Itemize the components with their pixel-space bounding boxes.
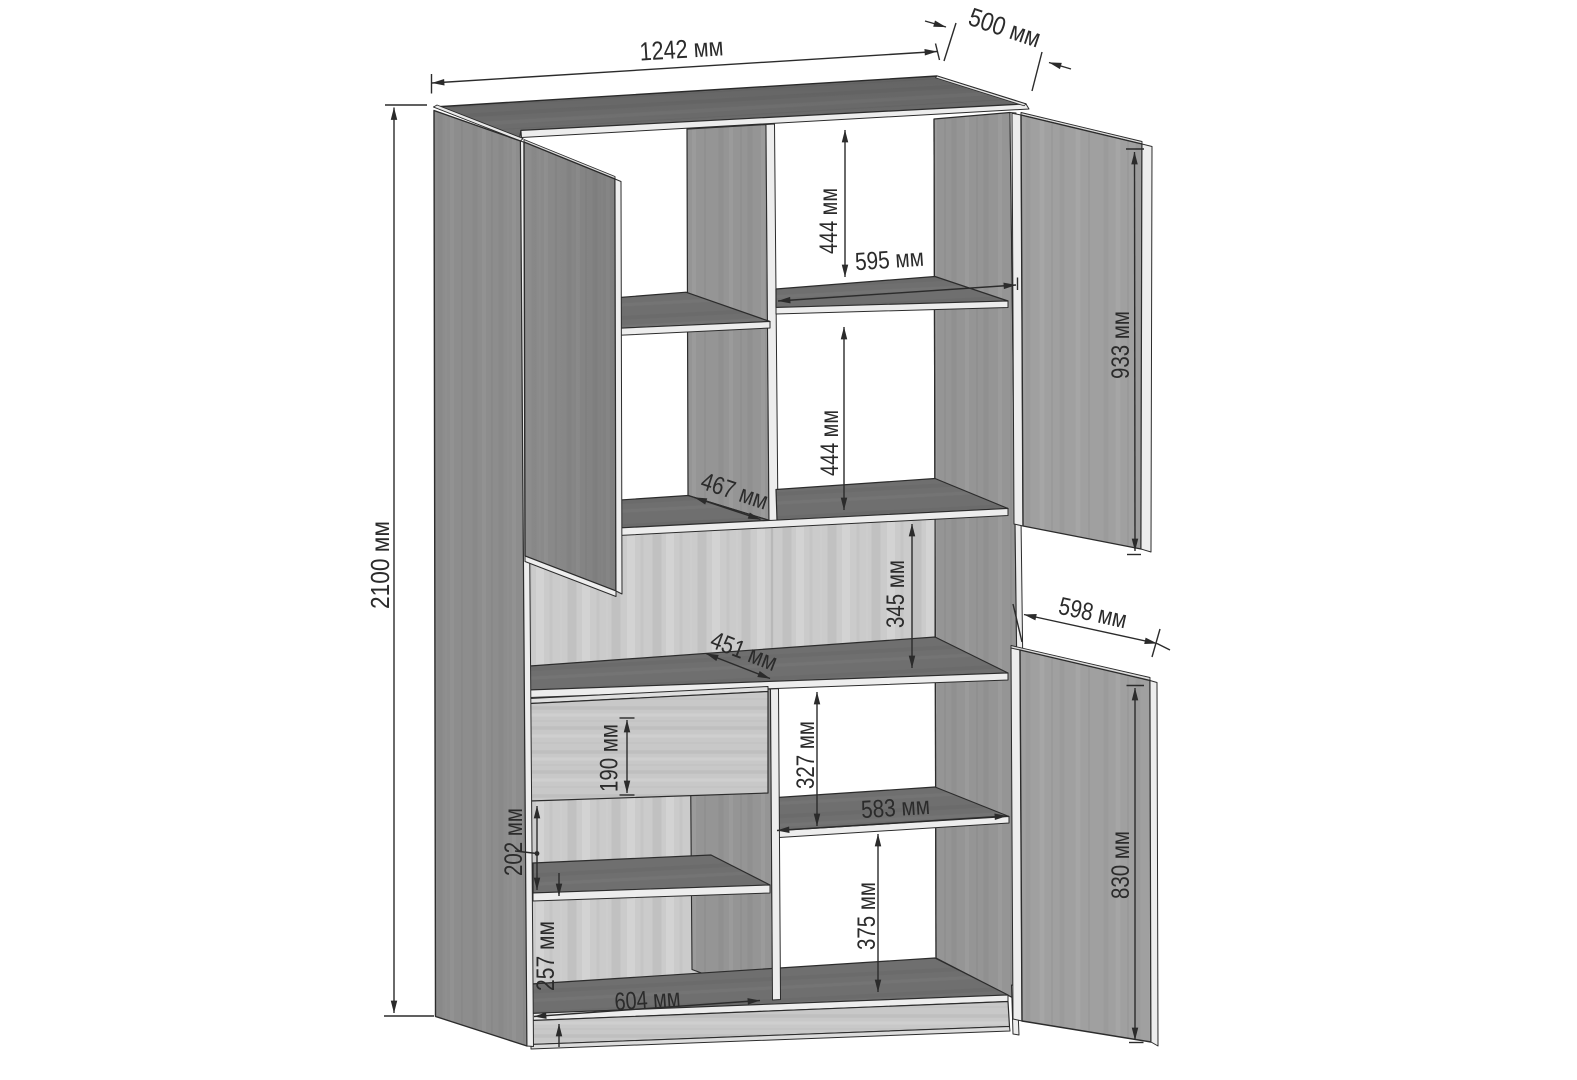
svg-text:190 мм: 190 мм [596,724,624,792]
svg-text:257 мм: 257 мм [532,921,560,991]
svg-text:933 мм: 933 мм [1107,311,1135,379]
svg-text:2100 мм: 2100 мм [365,521,395,609]
svg-text:202 мм: 202 мм [500,808,528,876]
svg-text:444 мм: 444 мм [815,188,843,254]
svg-text:444 мм: 444 мм [816,410,844,476]
svg-text:1242 мм: 1242 мм [639,31,725,66]
svg-text:375 мм: 375 мм [853,882,881,950]
svg-text:604 мм: 604 мм [614,984,682,1017]
svg-text:345 мм: 345 мм [882,560,910,628]
svg-text:595 мм: 595 мм [854,244,925,277]
svg-text:327 мм: 327 мм [792,721,820,789]
svg-text:583 мм: 583 мм [860,792,931,824]
svg-text:830 мм: 830 мм [1107,831,1135,899]
